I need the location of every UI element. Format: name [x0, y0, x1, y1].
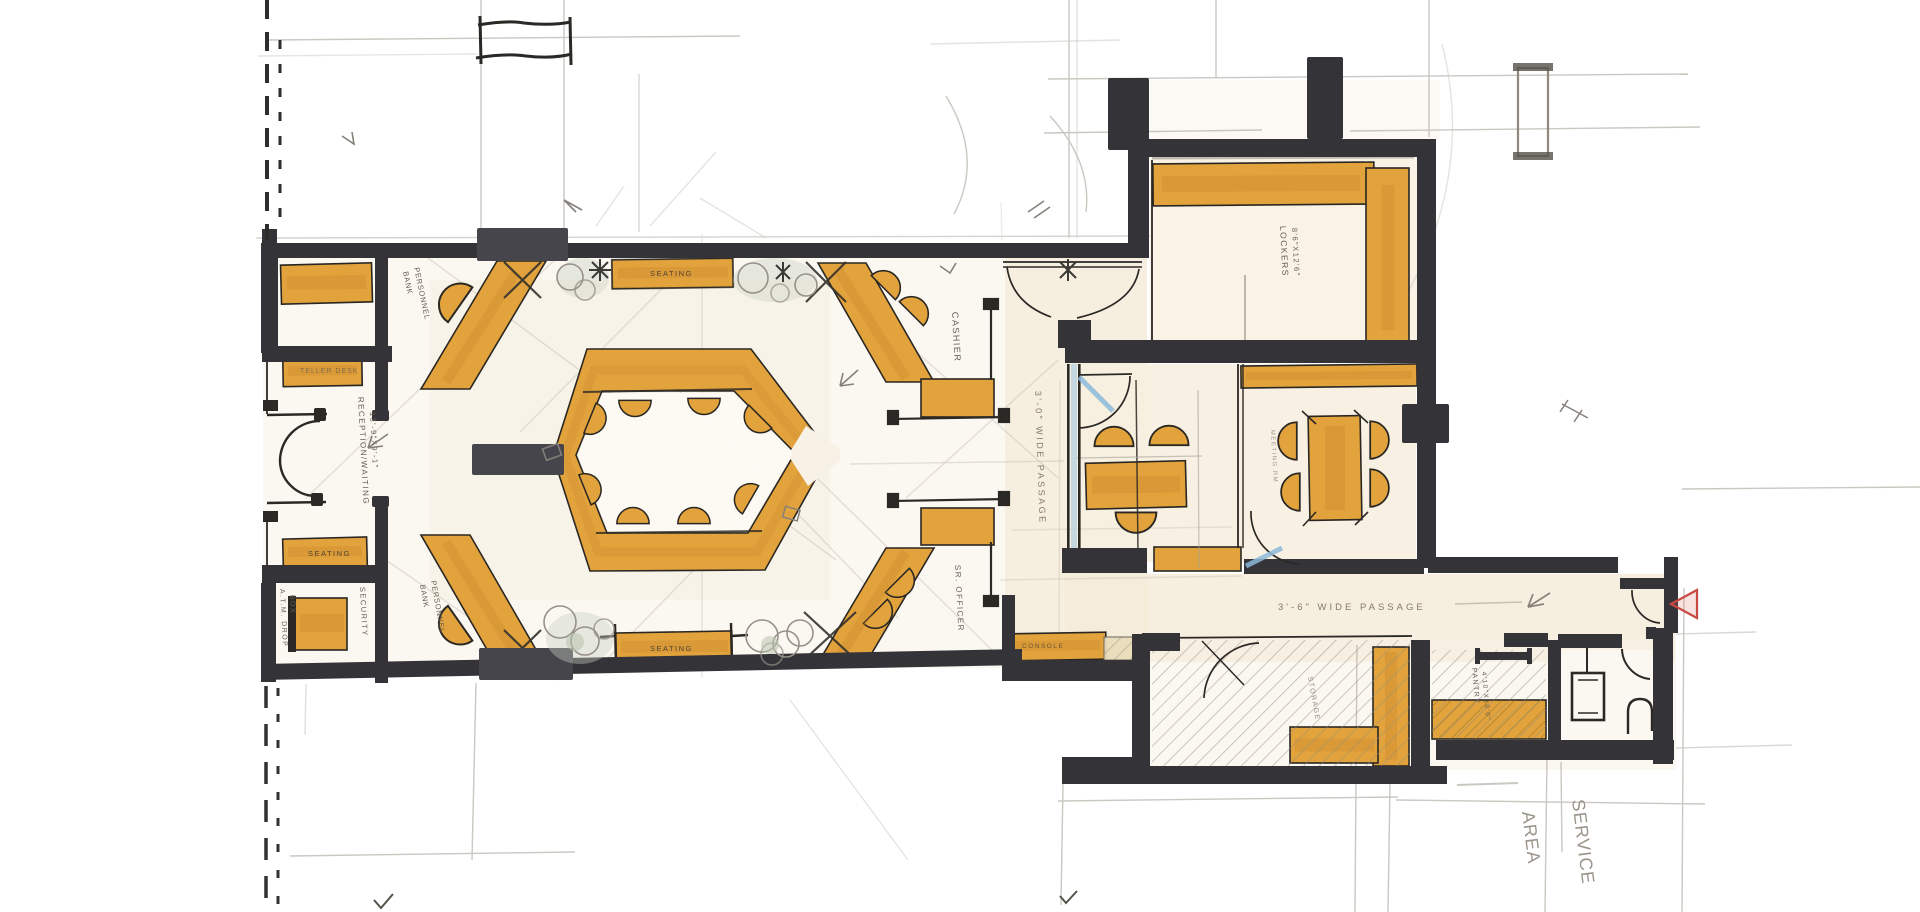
svg-text:3'-6" WIDE PASSAGE: 3'-6" WIDE PASSAGE [1278, 602, 1426, 613]
svg-text:SEATING: SEATING [650, 644, 693, 653]
svg-text:TELLER DESK: TELLER DESK [300, 368, 358, 375]
svg-text:SEATING: SEATING [308, 549, 351, 558]
svg-text:CONSOLE: CONSOLE [1022, 643, 1064, 650]
svg-text:SEATING: SEATING [650, 269, 693, 278]
svg-text:BOX: BOX [288, 595, 296, 615]
